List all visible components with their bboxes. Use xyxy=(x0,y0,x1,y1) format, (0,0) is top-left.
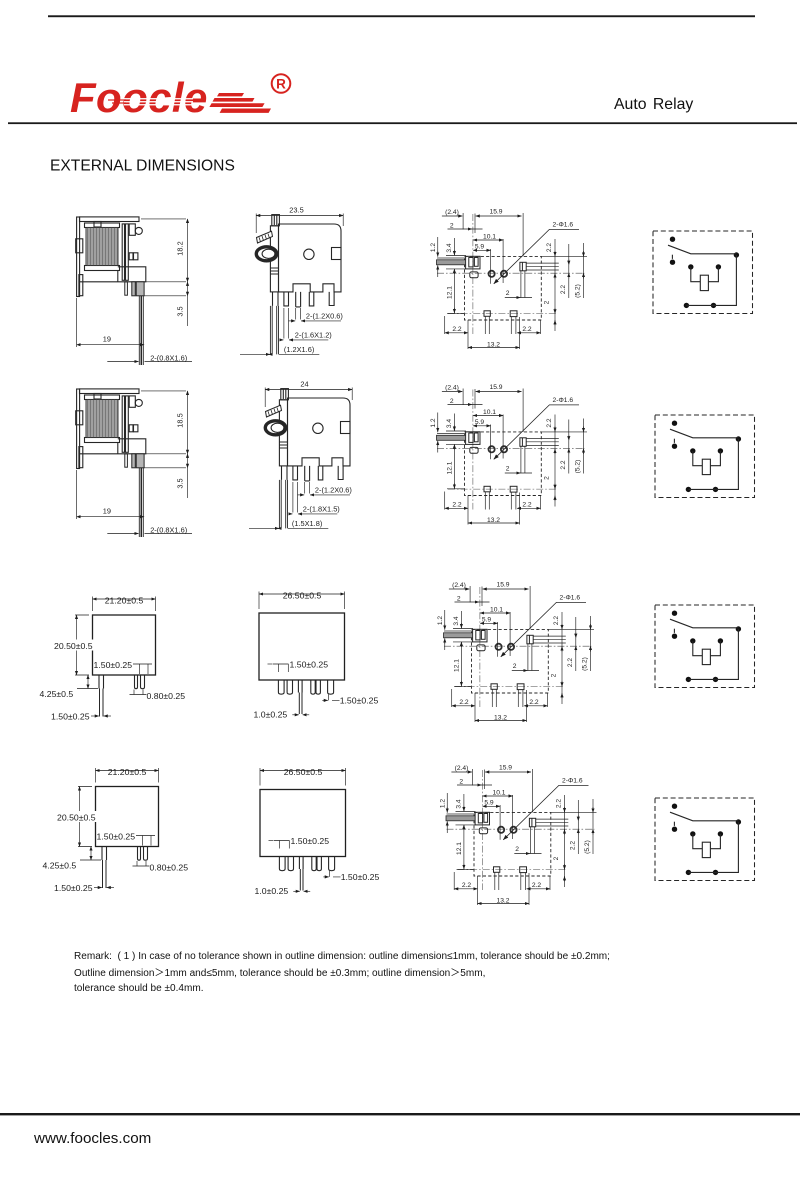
svg-text:EXTERNAL DIMENSIONS: EXTERNAL DIMENSIONS xyxy=(50,158,235,175)
svg-text:18.2: 18.2 xyxy=(176,241,185,255)
svg-text:24: 24 xyxy=(300,380,308,389)
svg-text:tolerance should be ±0.4mm.: tolerance should be ±0.4mm. xyxy=(74,983,204,994)
svg-text:2-(1.8X1.5): 2-(1.8X1.5) xyxy=(303,504,340,513)
svg-text:(1.2X1.6): (1.2X1.6) xyxy=(284,345,314,354)
svg-text:www.foocles.com: www.foocles.com xyxy=(33,1130,151,1147)
svg-text:2-(1.6X1.2): 2-(1.6X1.2) xyxy=(295,330,332,339)
svg-text:Auto Relay: Auto Relay xyxy=(614,96,693,113)
svg-text:Outline dimension＞1mm and≤5mm,: Outline dimension＞1mm and≤5mm, tolerance… xyxy=(74,968,485,979)
svg-text:23.5: 23.5 xyxy=(289,206,303,215)
svg-text:18.5: 18.5 xyxy=(176,413,185,427)
svg-text:R: R xyxy=(276,77,286,92)
svg-text:Remark: ( 1 ) In case of no t: Remark: ( 1 ) In case of no tolerance sh… xyxy=(74,951,610,962)
svg-text:Foocle: Foocle xyxy=(70,74,208,121)
svg-text:(1.5X1.8): (1.5X1.8) xyxy=(292,519,322,528)
